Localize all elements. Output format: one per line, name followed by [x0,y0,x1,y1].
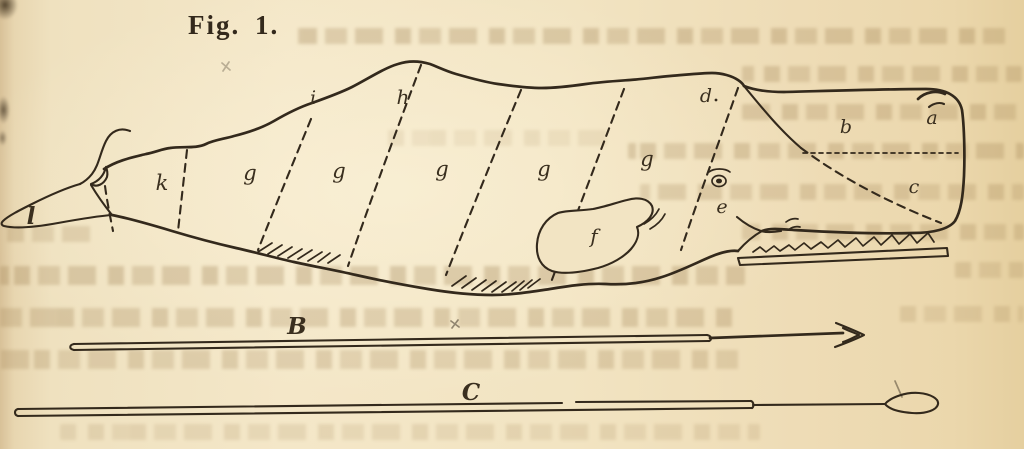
lance-pole-cap [15,409,18,416]
label-blowhole-a: a [926,107,937,129]
label-lance-C: C [462,379,481,406]
head-diagonal-dashed [801,148,941,223]
scanned-book-page: Fig. 1. [0,0,1024,449]
label-d-period [715,99,718,102]
eye-brow-stroke [709,169,730,172]
label-section-k: k [156,171,169,195]
ink-speck-mid [451,320,459,328]
ink-speck-top [222,62,230,71]
blowhole-mark [918,92,945,99]
section-divider-3 [258,119,311,250]
lance-pole-bottom [18,408,752,416]
label-blanket-section-g: g [435,157,448,181]
section-divider-5 [446,90,521,275]
head-diagonal-line [744,86,801,148]
label-neck-d: d [700,85,712,107]
label-back-i: i [310,87,316,109]
lance-scratch-mark [895,381,902,397]
belly-hatching-left [258,243,340,263]
label-head-c: c [909,176,920,198]
harpoon-pole-cap [70,344,74,350]
label-blanket-section-g: g [332,159,345,183]
section-divider-4 [348,65,421,266]
label-hump-h: h [397,85,410,109]
label-blanket-section-g: g [243,161,256,185]
lance-pole-top [18,401,751,409]
section-divider-7 [681,88,738,250]
label-eye-e: e [716,196,727,218]
label-tail-fluke-l: l [27,203,36,230]
whale-cutting-diagram: l k g g g g g i h d e f b a c B C [0,0,1024,449]
label-harpoon-B: B [286,313,306,340]
section-divider-2 [178,150,187,231]
harpoon-iron-shank [710,333,843,338]
label-blanket-section-g: g [537,157,550,181]
tail-body-join [91,185,112,215]
eye-pupil [716,179,722,184]
lance-shank [753,404,885,405]
whale-belly-outline [112,215,738,295]
lance-head-blade [885,393,938,413]
label-blanket-section-g: g [640,147,653,171]
jaw-bone [738,248,948,265]
tail-fluke-upper [80,129,130,184]
belly-hatching-right [452,276,540,292]
label-head-b: b [840,116,852,138]
